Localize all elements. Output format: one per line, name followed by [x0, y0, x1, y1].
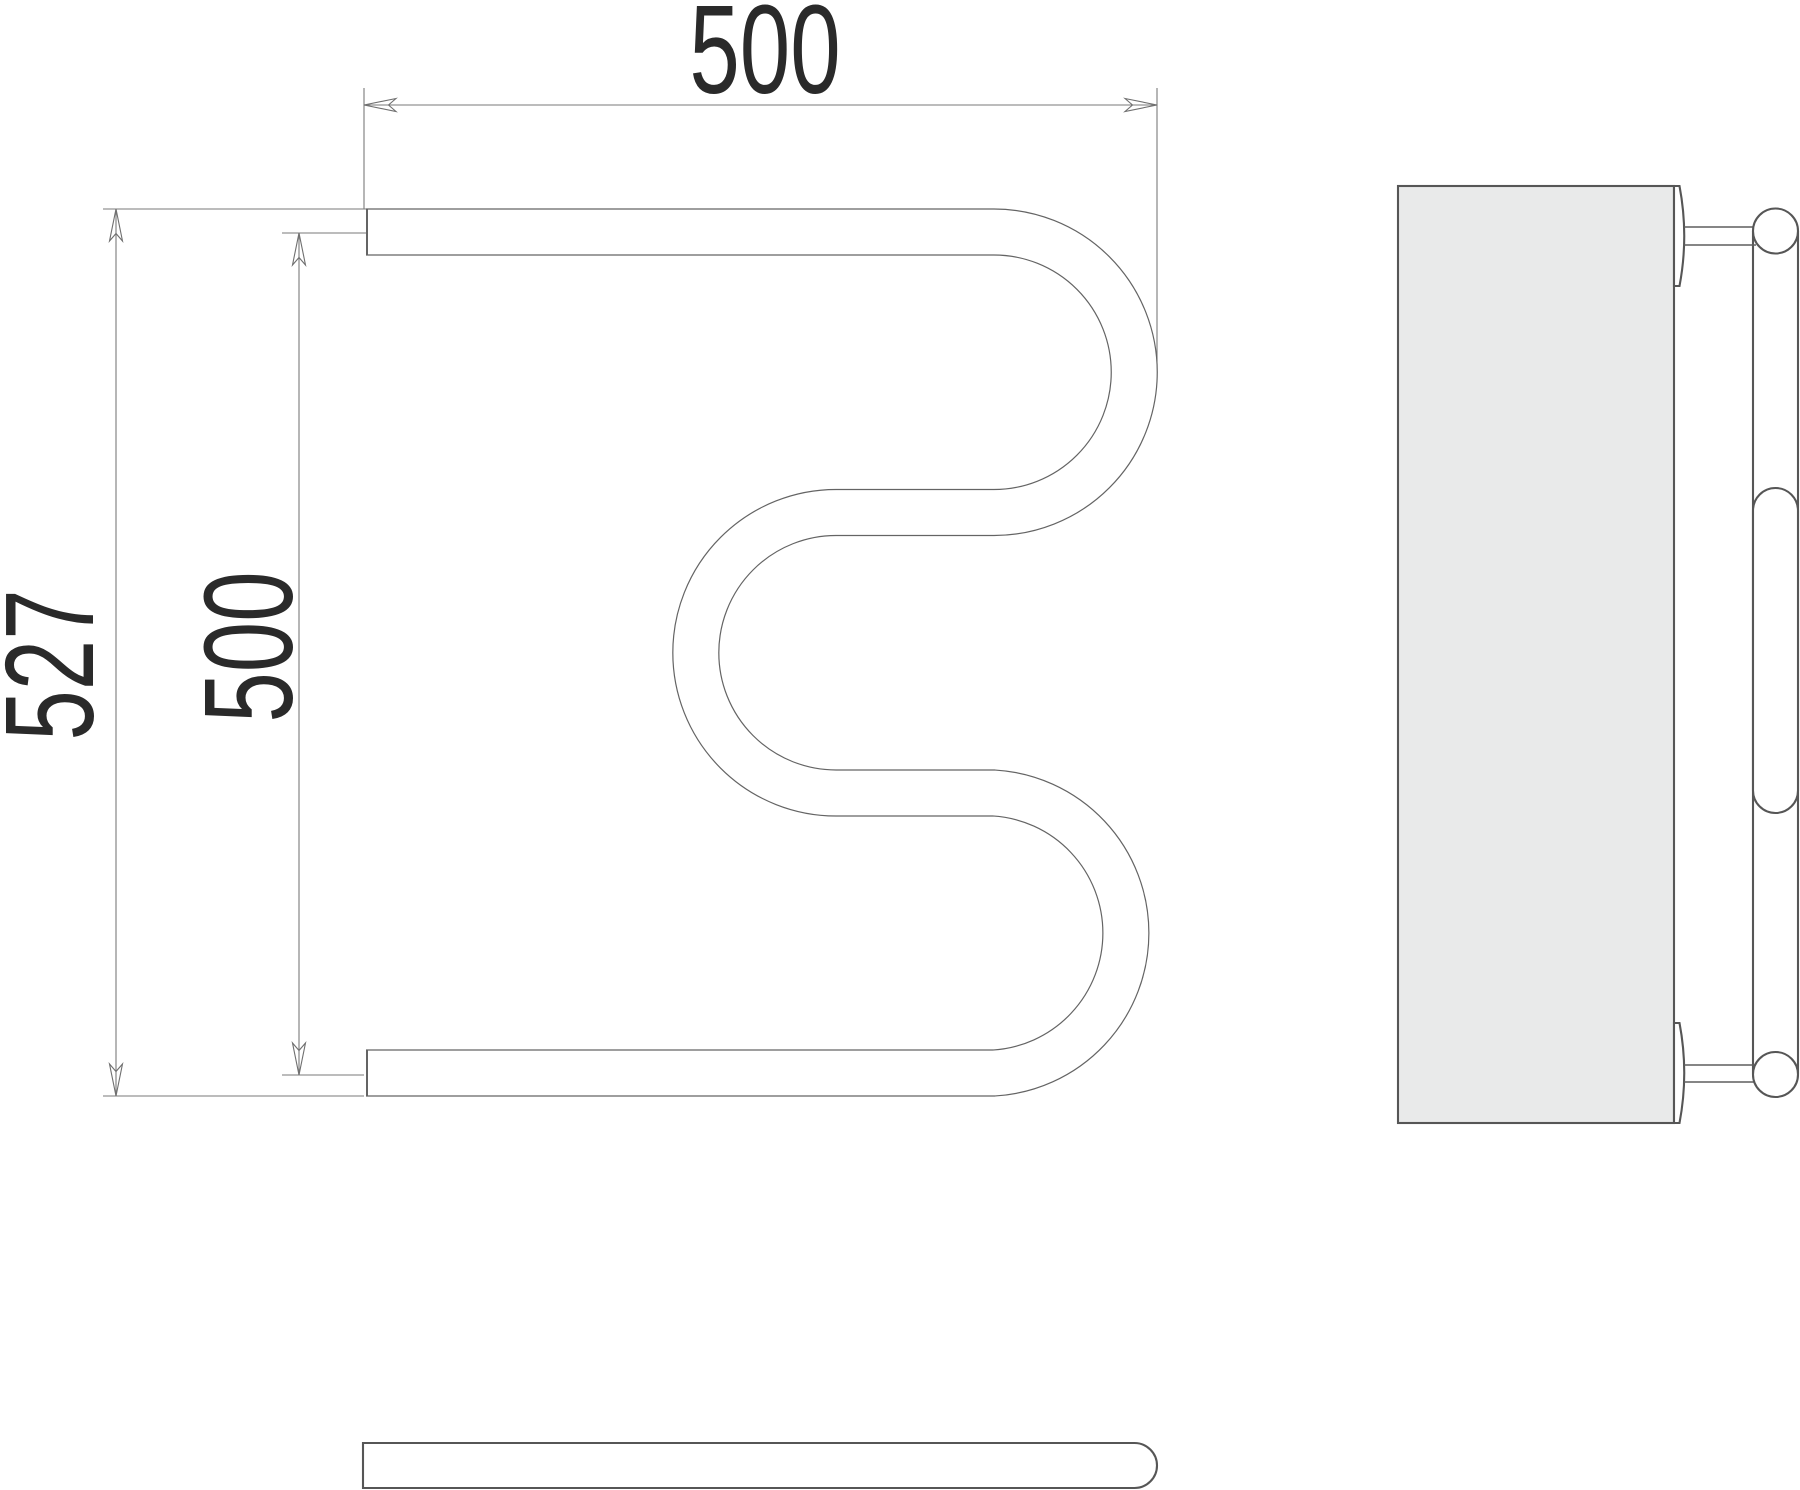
tube-body	[368, 232, 1134, 1073]
mount-stem-bottom	[1684, 1065, 1756, 1082]
bottom-view	[363, 1443, 1157, 1488]
dimension-overall-height-label: 527	[0, 589, 121, 740]
middle-tube-capsule	[1753, 488, 1798, 813]
wall-panel	[1398, 186, 1674, 1123]
tube-outline	[366, 232, 1134, 1073]
technical-drawing: 500 527 500	[0, 0, 1800, 1490]
side-view	[1398, 186, 1798, 1123]
top-bar-end-circle	[1753, 209, 1798, 254]
escutcheon-bottom	[1674, 1023, 1684, 1123]
mount-stem-top	[1684, 227, 1756, 245]
front-view	[366, 232, 1134, 1073]
drawing-canvas: 500 527 500	[0, 0, 1800, 1490]
dimension-axis-height-label: 500	[180, 571, 320, 722]
bottom-bar-end-circle	[1753, 1052, 1798, 1097]
dimension-width-label: 500	[689, 0, 840, 121]
escutcheon-top	[1674, 186, 1684, 286]
bottom-view-tube	[363, 1443, 1157, 1488]
